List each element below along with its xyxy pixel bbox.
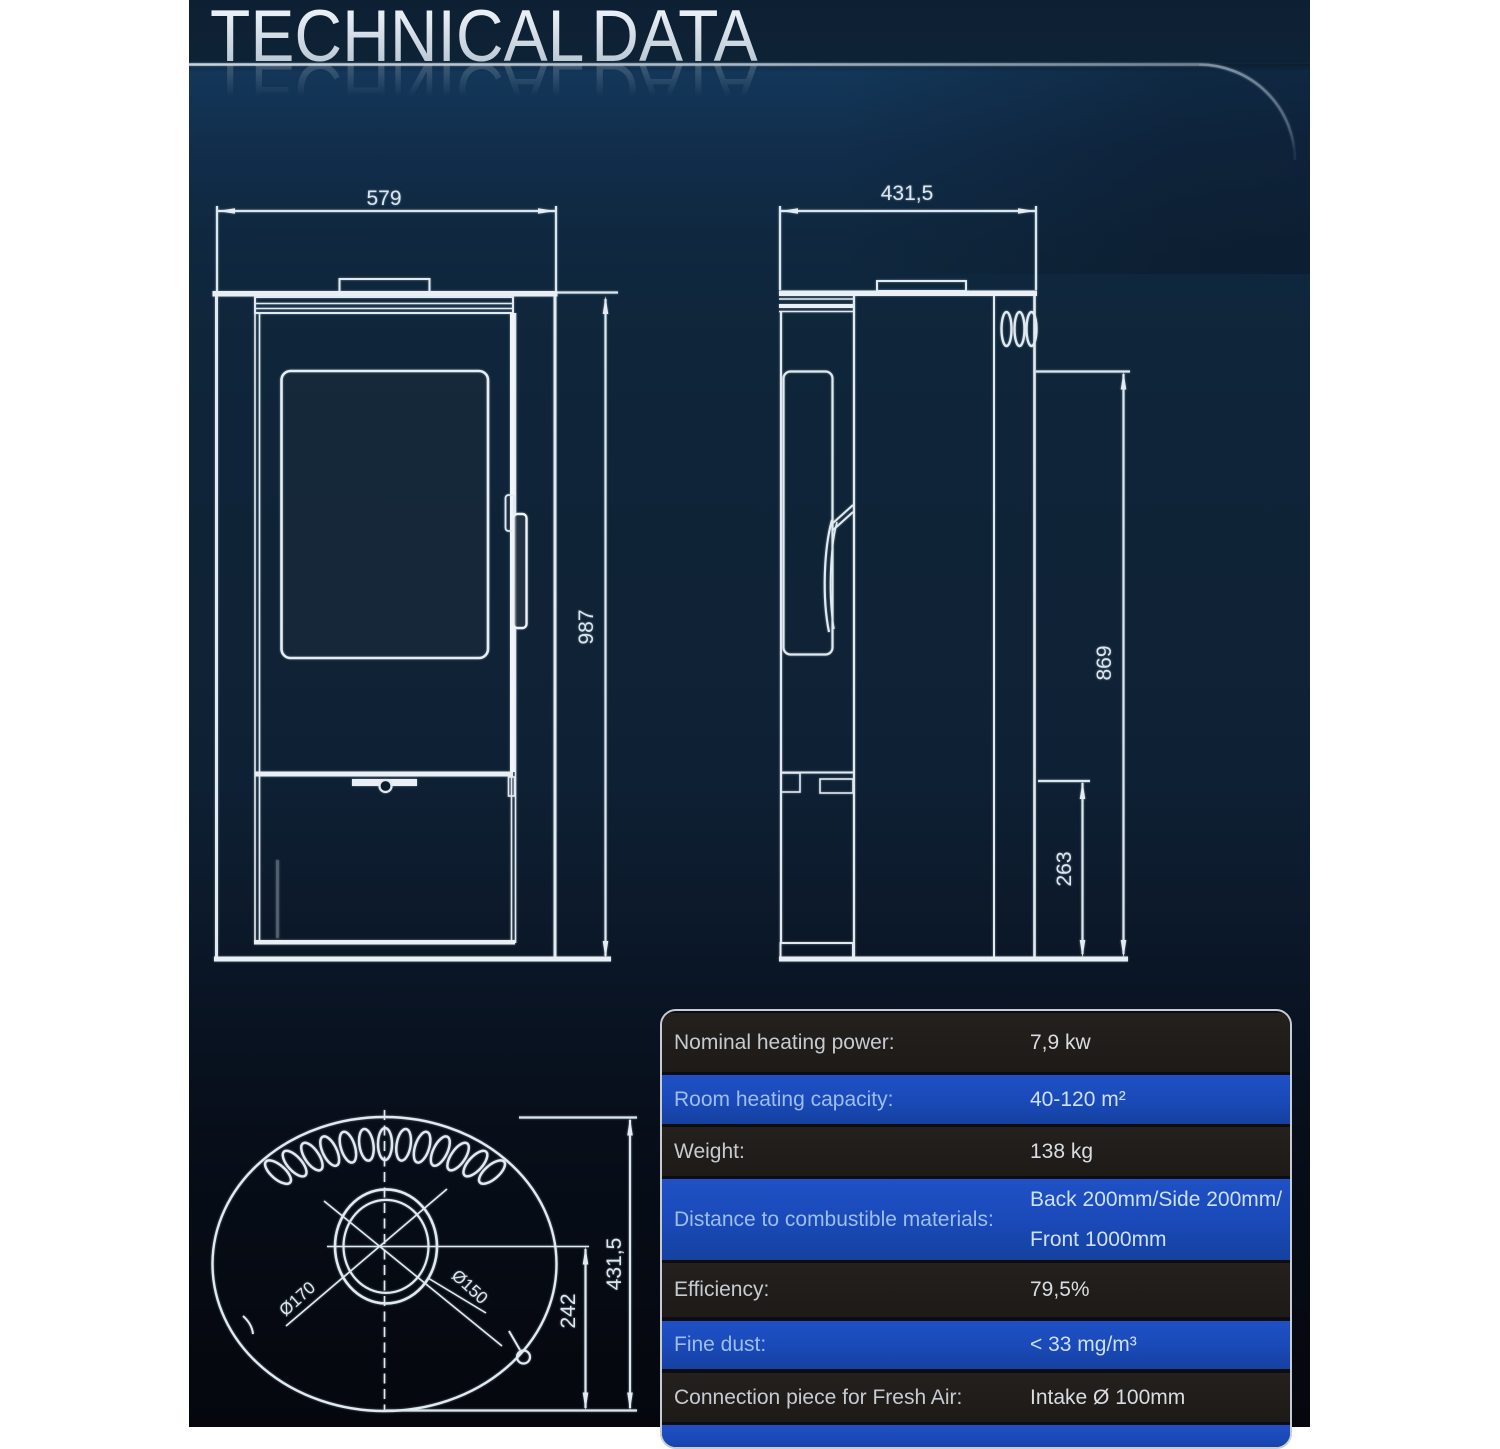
svg-text:431,5: 431,5 [603,1238,626,1291]
svg-text:869: 869 [1093,645,1116,680]
svg-text:242: 242 [557,1293,580,1328]
svg-text:987: 987 [575,609,598,644]
svg-text:579: 579 [366,187,401,210]
svg-text:Ø150: Ø150 [448,1266,492,1308]
svg-text:431,5: 431,5 [881,182,934,205]
svg-text:263: 263 [1053,851,1076,886]
svg-text:Ø170: Ø170 [276,1278,320,1320]
